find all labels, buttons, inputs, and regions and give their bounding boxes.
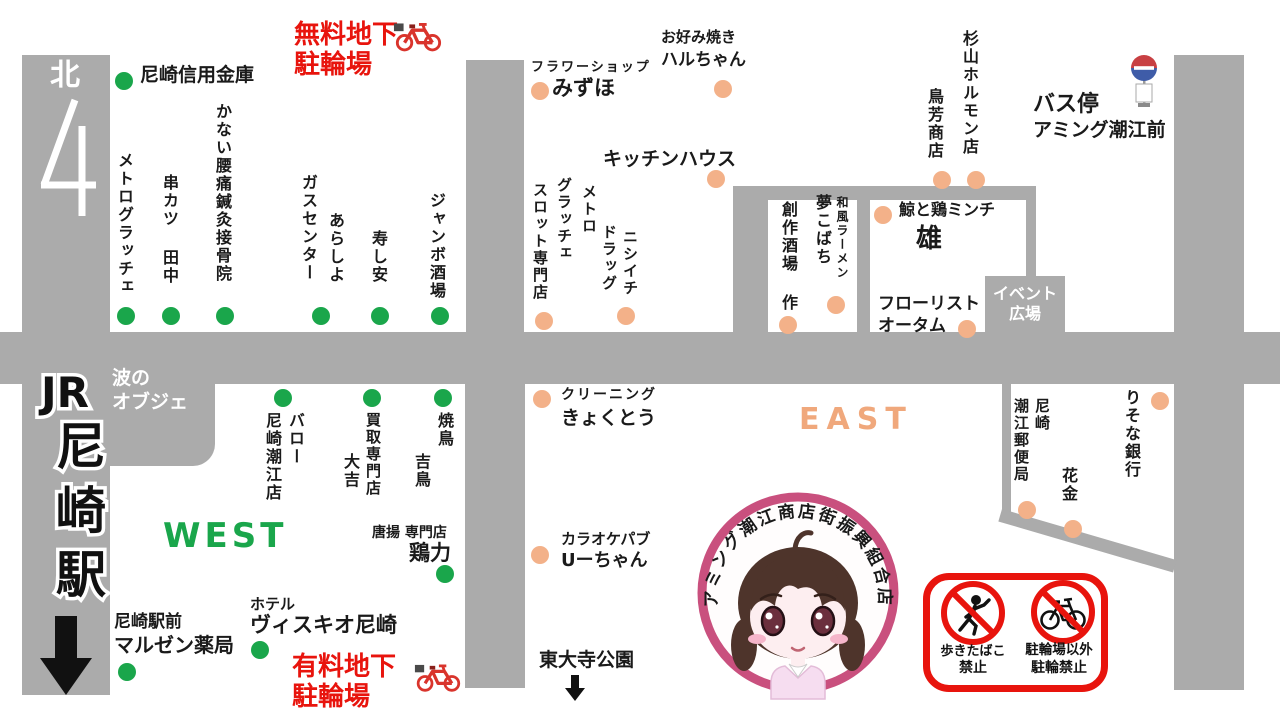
shop-label-フローリスト オータム: フローリスト <box>878 294 980 314</box>
shop-label-串カツ 田中: 串カツ 田中 <box>161 174 177 285</box>
shop-label-鳥芳商店: 鳥芳商店 <box>926 88 942 160</box>
shop-dot <box>533 390 551 408</box>
shop-label-クリーニング きょくとう: きょくとう <box>561 407 656 429</box>
shop-label-メトロ グラッチェ スロット専門店: スロット専門店 <box>532 182 547 301</box>
shop-label-尼崎駅前 マルゼン薬局: マルゼン薬局 <box>114 634 234 658</box>
road-bottom-divider <box>465 384 525 688</box>
exit-number <box>28 90 104 220</box>
shop-dot <box>535 312 553 330</box>
shop-label-杉山ホルモン店: 杉山ホルモン店 <box>961 30 977 156</box>
bicycle-icon <box>414 660 462 692</box>
shop-label-メトログラッチェ: メトログラッチェ <box>116 152 132 296</box>
shop-label-りそな銀行: りそな銀行 <box>1123 389 1139 479</box>
park-label: 東大寺公園 <box>539 649 634 671</box>
paid-parking-label: 有料地下駐輪場 <box>292 652 396 712</box>
bus-stop-icon <box>1128 54 1160 110</box>
event-plaza-line2: 広場 <box>985 304 1065 324</box>
no-bike-label-line1: 駐輪場以外 <box>1011 643 1107 658</box>
shop-label-唐揚専門店 鶏力: 鶏力 <box>409 541 451 566</box>
shop-label-バロー尼崎潮江店: 尼崎潮江店 <box>264 412 280 502</box>
shop-dot <box>115 72 133 90</box>
shop-label-唐揚専門店 鶏力: 唐揚 専門店 <box>372 525 447 542</box>
event-plaza: イベント広場 <box>985 276 1065 332</box>
shop-dot <box>933 171 951 189</box>
shop-label-尼崎潮江郵便局: 尼崎 <box>1034 398 1049 432</box>
road-east-divider <box>1002 384 1011 515</box>
shop-label-創作酒場 作: 創作酒場 作 <box>780 201 796 312</box>
shop-dot <box>216 307 234 325</box>
bus-stop-label: バス停 <box>1033 92 1099 118</box>
road-top-divider <box>466 60 524 332</box>
shop-dot <box>779 316 797 334</box>
shop-dot <box>1151 392 1169 410</box>
shop-label-ガスセンター: ガスセンター <box>300 174 316 282</box>
shop-label-焼鳥 吉鳥: 吉鳥 <box>413 453 429 489</box>
no-smoking-label-line2: 禁止 <box>925 661 1021 676</box>
station-arrow-icon <box>40 658 92 695</box>
west-label: WEST <box>163 516 287 556</box>
road-block-left <box>733 200 768 332</box>
station-arrow-shaft <box>55 616 77 660</box>
park-arrow-head <box>565 688 585 701</box>
road-middle <box>0 332 1280 384</box>
shop-label-ニシイチ ドラッグ: ドラッグ <box>601 224 616 292</box>
shop-dot <box>874 206 892 224</box>
shop-label-お好み焼き ハルちゃん: ハルちゃん <box>661 50 746 70</box>
park-arrow-icon <box>571 675 579 689</box>
shop-label-尼崎駅前 マルゼン薬局: 尼崎駅前 <box>114 612 182 632</box>
shop-label-メトロ グラッチェ スロット専門店: グラッチェ <box>556 177 571 262</box>
shop-dot <box>431 307 449 325</box>
shop-dot <box>617 307 635 325</box>
shop-label-かない腰痛鍼灸接骨院: かない腰痛鍼灸接骨院 <box>214 103 230 283</box>
shop-label-和風ラーメン 夢こばち: 和風ラーメン <box>836 196 848 280</box>
shop-label-ジャンボ酒場: ジャンボ酒場 <box>428 192 444 300</box>
shop-label-フラワーショップ みずほ: フラワーショップ <box>531 60 651 75</box>
shop-dot <box>1064 520 1082 538</box>
shop-label-買取専門店 大吉: 大吉 <box>342 453 358 489</box>
shop-dot <box>371 307 389 325</box>
shop-dot <box>118 663 136 681</box>
no-smoking-label-line1: 歩きたばこ <box>925 645 1021 659</box>
shop-dot <box>162 307 180 325</box>
shop-dot <box>531 546 549 564</box>
shop-label-花金: 花金 <box>1060 467 1076 503</box>
shop-label-あらしよ: あらしよ <box>327 212 343 284</box>
wave-object-label: 波のオブジェ <box>112 366 188 414</box>
association-logo: アミング潮江商店街振興組合店 <box>695 487 901 699</box>
shop-dot <box>363 389 381 407</box>
free-parking-label: 無料地下駐輪場 <box>294 20 398 80</box>
shop-dot <box>251 641 269 659</box>
shop-dot <box>436 565 454 583</box>
shop-dot <box>827 296 845 314</box>
east-label: EAST <box>799 402 913 437</box>
station-name: 尼崎駅 尼崎駅 <box>41 420 101 630</box>
shop-label-カラオケパブ Uーちゃん: カラオケパブ <box>561 531 650 549</box>
shop-label-ニシイチ ドラッグ: ニシイチ <box>622 229 637 297</box>
bus-stop-name: アミング潮江前 <box>1033 119 1166 141</box>
station-jr: JR JR <box>41 368 101 420</box>
shop-dot <box>434 389 452 407</box>
shop-label-鯨と鶏ミンチ 雄: 雄 <box>916 224 942 255</box>
shop-dot <box>117 307 135 325</box>
shop-label-ホテル ヴィスキオ尼崎: ホテル <box>250 596 295 614</box>
shop-label-フローリスト オータム: オータム <box>878 316 946 336</box>
event-plaza-line1: イベント <box>985 284 1065 304</box>
shop-label-フラワーショップ みずほ: みずほ <box>552 76 615 101</box>
shop-dot <box>1018 501 1036 519</box>
shop-label-鯨と鶏ミンチ 雄: 鯨と鶏ミンチ <box>899 201 995 220</box>
shop-dot <box>312 307 330 325</box>
shop-label-寿し安: 寿し安 <box>370 230 386 284</box>
bicycle-icon <box>393 18 443 52</box>
shop-dot <box>714 80 732 98</box>
shop-label-尼崎潮江郵便局: 潮江郵便局 <box>1013 398 1028 483</box>
road-right <box>1174 55 1244 690</box>
shop-label-メトロ グラッチェ スロット専門店: メトロ <box>581 184 596 235</box>
shop-label-焼鳥 吉鳥: 焼鳥 <box>436 412 452 448</box>
shop-label-お好み焼き ハルちゃん: お好み焼き <box>661 29 736 47</box>
shop-label-和風ラーメン 夢こばち: 夢こばち <box>814 194 830 266</box>
road-topright-bar <box>733 186 1036 200</box>
shop-dot <box>958 320 976 338</box>
no-bike-label-line2: 駐輪禁止 <box>1011 661 1107 676</box>
shop-label-バロー尼崎潮江店: バロー <box>287 412 303 466</box>
north-label: 北 <box>50 58 80 93</box>
road-block-mid <box>857 200 870 332</box>
shop-dot <box>274 389 292 407</box>
shop-dot <box>967 171 985 189</box>
shop-label-キッチンハウス: キッチンハウス <box>603 148 736 170</box>
shop-label-買取専門店 大吉: 買取専門店 <box>365 412 380 497</box>
shopping-street-map: イベント広場 北 JR JR 尼崎駅 尼崎駅 波のオブジェ WEST EAST … <box>0 0 1280 720</box>
shop-dot <box>707 170 725 188</box>
shop-label-クリーニング きょくとう: クリーニング <box>561 387 657 404</box>
road-block-right <box>1026 200 1036 281</box>
shop-dot <box>531 82 549 100</box>
shop-label-尼崎信用金庫: 尼崎信用金庫 <box>140 64 254 86</box>
shop-label-ホテル ヴィスキオ尼崎: ヴィスキオ尼崎 <box>250 613 397 638</box>
shop-label-カラオケパブ Uーちゃん: Uーちゃん <box>561 550 648 571</box>
